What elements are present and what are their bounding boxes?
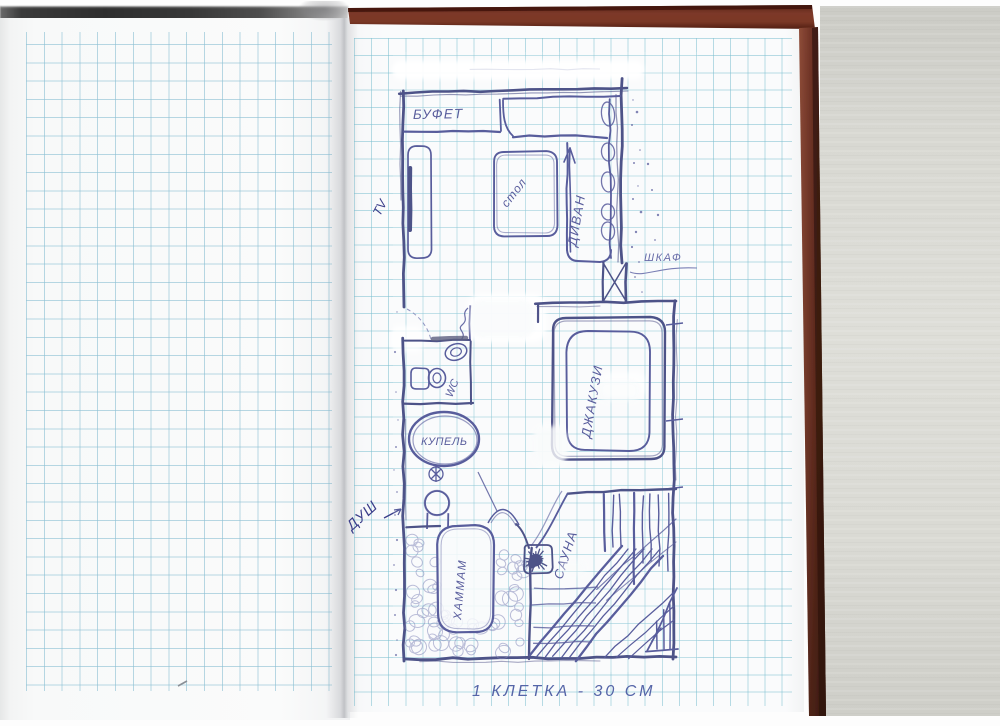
svg-text:TV: TV [370, 196, 391, 218]
svg-text:ДУШ: ДУШ [342, 498, 381, 535]
svg-text:1 КЛЕТКА - 30 СМ: 1 КЛЕТКА - 30 СМ [472, 683, 655, 700]
